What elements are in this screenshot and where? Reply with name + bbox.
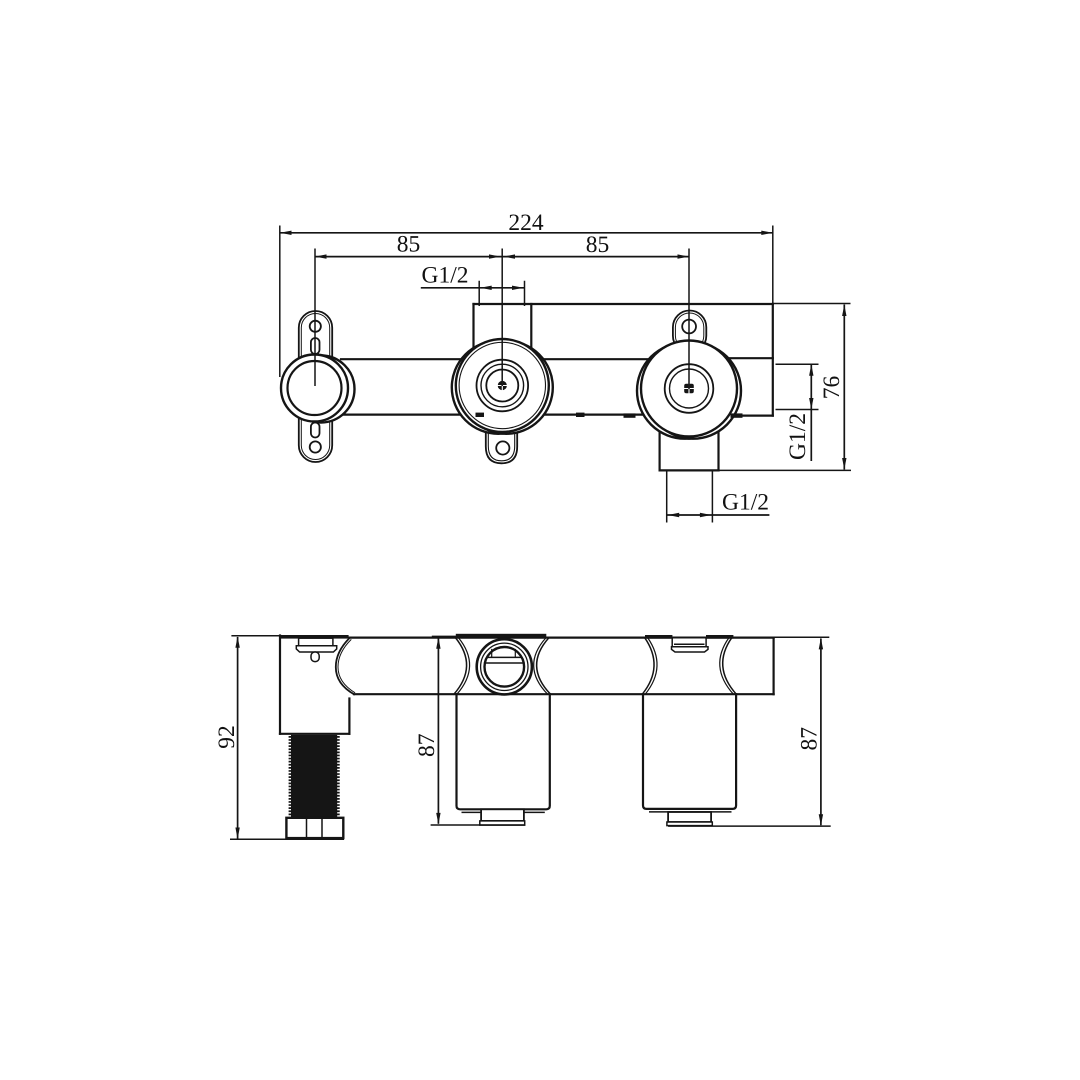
svg-text:G1/2: G1/2 — [422, 263, 469, 289]
svg-text:76: 76 — [819, 376, 845, 400]
svg-text:224: 224 — [508, 210, 544, 236]
svg-text:G1/2: G1/2 — [785, 413, 811, 460]
svg-text:85: 85 — [397, 232, 421, 258]
svg-text:87: 87 — [414, 733, 440, 757]
svg-text:G1/2: G1/2 — [722, 490, 769, 516]
svg-text:87: 87 — [796, 727, 822, 751]
svg-text:92: 92 — [214, 725, 240, 749]
svg-text:85: 85 — [586, 232, 610, 258]
